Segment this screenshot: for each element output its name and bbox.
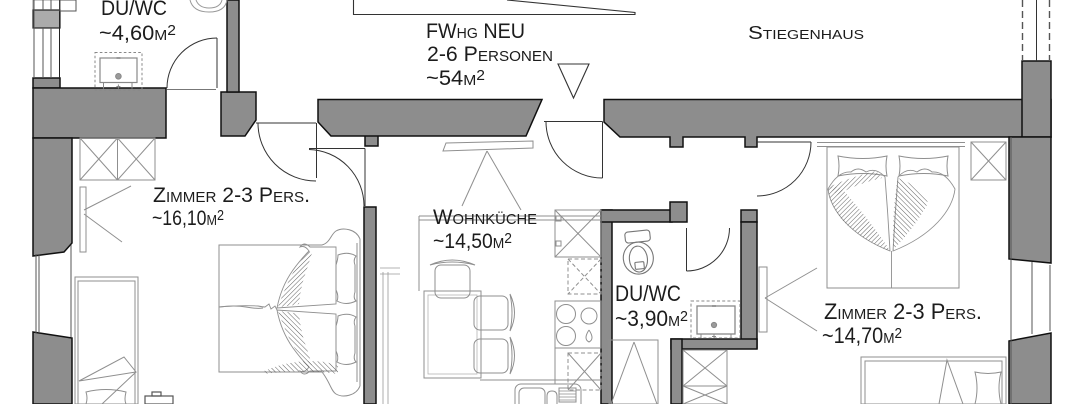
svg-text:~14,50m2: ~14,50m2: [433, 230, 512, 253]
svg-text:Zimmer 2-3 Pers.: Zimmer 2-3 Pers.: [824, 299, 982, 324]
svg-text:2-6 Personen: 2-6 Personen: [427, 43, 553, 66]
svg-text:~4,60m2: ~4,60m2: [99, 22, 176, 45]
svg-text:~16,10m2: ~16,10m2: [152, 207, 224, 230]
svg-text:Wohnküche: Wohnküche: [433, 206, 537, 229]
svg-text:Zimmer 2-3 Pers.: Zimmer 2-3 Pers.: [153, 184, 310, 207]
svg-text:Stiegenhaus: Stiegenhaus: [748, 22, 864, 43]
svg-text:DU/WC: DU/WC: [101, 0, 167, 20]
svg-text:~14,70m2: ~14,70m2: [822, 323, 902, 348]
svg-text:~3,90m2: ~3,90m2: [615, 306, 688, 331]
svg-text:DU/WC: DU/WC: [615, 281, 681, 306]
svg-text:~54m2: ~54m2: [426, 67, 485, 90]
svg-text:FWhg NEU: FWhg NEU: [426, 20, 525, 43]
